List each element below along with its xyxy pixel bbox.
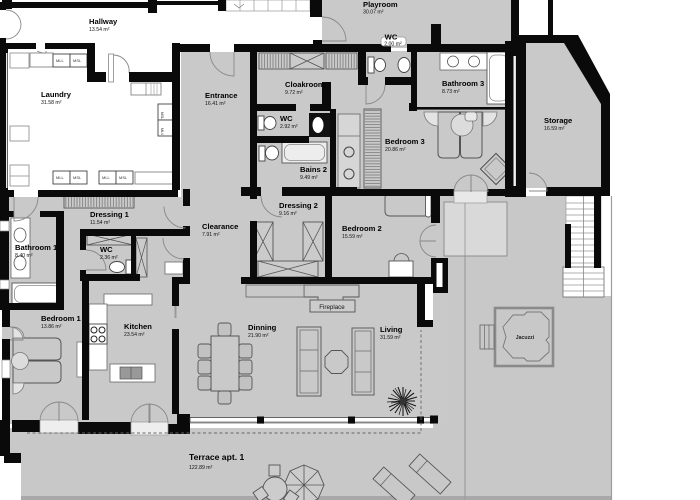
svg-text:Bains 2: Bains 2 — [300, 165, 327, 174]
svg-text:15.59 m²: 15.59 m² — [342, 234, 363, 240]
svg-text:8.40 m²: 8.40 m² — [15, 253, 33, 259]
svg-text:13.54 m²: 13.54 m² — [89, 27, 110, 33]
svg-text:MLL: MLL — [56, 58, 65, 63]
svg-text:Bathroom 1: Bathroom 1 — [15, 243, 58, 252]
svg-text:2.00 m²: 2.00 m² — [384, 42, 402, 48]
svg-text:20.86 m²: 20.86 m² — [385, 147, 406, 153]
svg-text:Bedroom 2: Bedroom 2 — [342, 224, 382, 233]
svg-text:9.72 m²: 9.72 m² — [285, 90, 303, 96]
svg-text:2.92 m²: 2.92 m² — [280, 124, 298, 130]
svg-text:7.91 m²: 7.91 m² — [202, 232, 220, 238]
svg-text:MLL: MLL — [102, 175, 111, 180]
svg-text:WC: WC — [100, 245, 113, 254]
svg-text:MSL: MSL — [160, 112, 164, 119]
svg-text:MSL: MSL — [119, 175, 128, 180]
svg-text:Fireplace: Fireplace — [319, 304, 345, 311]
svg-text:8.73 m²: 8.73 m² — [442, 89, 460, 95]
svg-text:16.41 m²: 16.41 m² — [205, 101, 226, 107]
svg-text:9.49 m²: 9.49 m² — [300, 175, 318, 181]
svg-text:MSL: MSL — [73, 58, 82, 63]
svg-text:Bathroom 3: Bathroom 3 — [442, 79, 484, 88]
svg-text:Clearance: Clearance — [202, 222, 238, 231]
svg-text:Hallway: Hallway — [89, 17, 118, 26]
svg-text:Bedroom 3: Bedroom 3 — [385, 137, 425, 146]
svg-text:23.54 m²: 23.54 m² — [124, 332, 145, 338]
svg-text:Storage: Storage — [544, 116, 572, 125]
svg-text:11.54 m²: 11.54 m² — [90, 220, 110, 226]
svg-text:9.16 m²: 9.16 m² — [279, 211, 297, 217]
svg-text:31.58 m²: 31.58 m² — [41, 100, 62, 106]
svg-text:Living: Living — [380, 325, 403, 334]
svg-text:WC: WC — [385, 33, 398, 42]
svg-text:30.07 m²: 30.07 m² — [363, 10, 384, 16]
svg-text:MSL: MSL — [73, 175, 82, 180]
svg-text:31.59 m²: 31.59 m² — [380, 335, 401, 341]
svg-text:MLL: MLL — [56, 175, 65, 180]
svg-text:122.89 m²: 122.89 m² — [189, 465, 213, 471]
svg-text:Cloakroom: Cloakroom — [285, 80, 325, 89]
svg-text:13.86 m²: 13.86 m² — [41, 324, 62, 330]
svg-text:Playroom: Playroom — [363, 0, 398, 9]
svg-text:Entrance: Entrance — [205, 91, 238, 100]
svg-text:Kitchen: Kitchen — [124, 322, 152, 331]
svg-text:21.90 m²: 21.90 m² — [248, 333, 269, 339]
svg-text:16.59 m²: 16.59 m² — [544, 126, 565, 132]
svg-text:Jacuzzi: Jacuzzi — [516, 335, 535, 341]
svg-text:Bedroom 1: Bedroom 1 — [41, 314, 81, 323]
svg-text:ML4: ML4 — [160, 128, 164, 135]
svg-text:2.36 m²: 2.36 m² — [100, 255, 118, 261]
svg-text:Dressing 2: Dressing 2 — [279, 201, 318, 210]
svg-text:Laundry: Laundry — [41, 90, 72, 99]
svg-text:Dinning: Dinning — [248, 323, 277, 332]
svg-text:Dressing 1: Dressing 1 — [90, 210, 130, 219]
svg-text:WC: WC — [280, 114, 293, 123]
svg-text:Terrace apt. 1: Terrace apt. 1 — [189, 452, 244, 462]
